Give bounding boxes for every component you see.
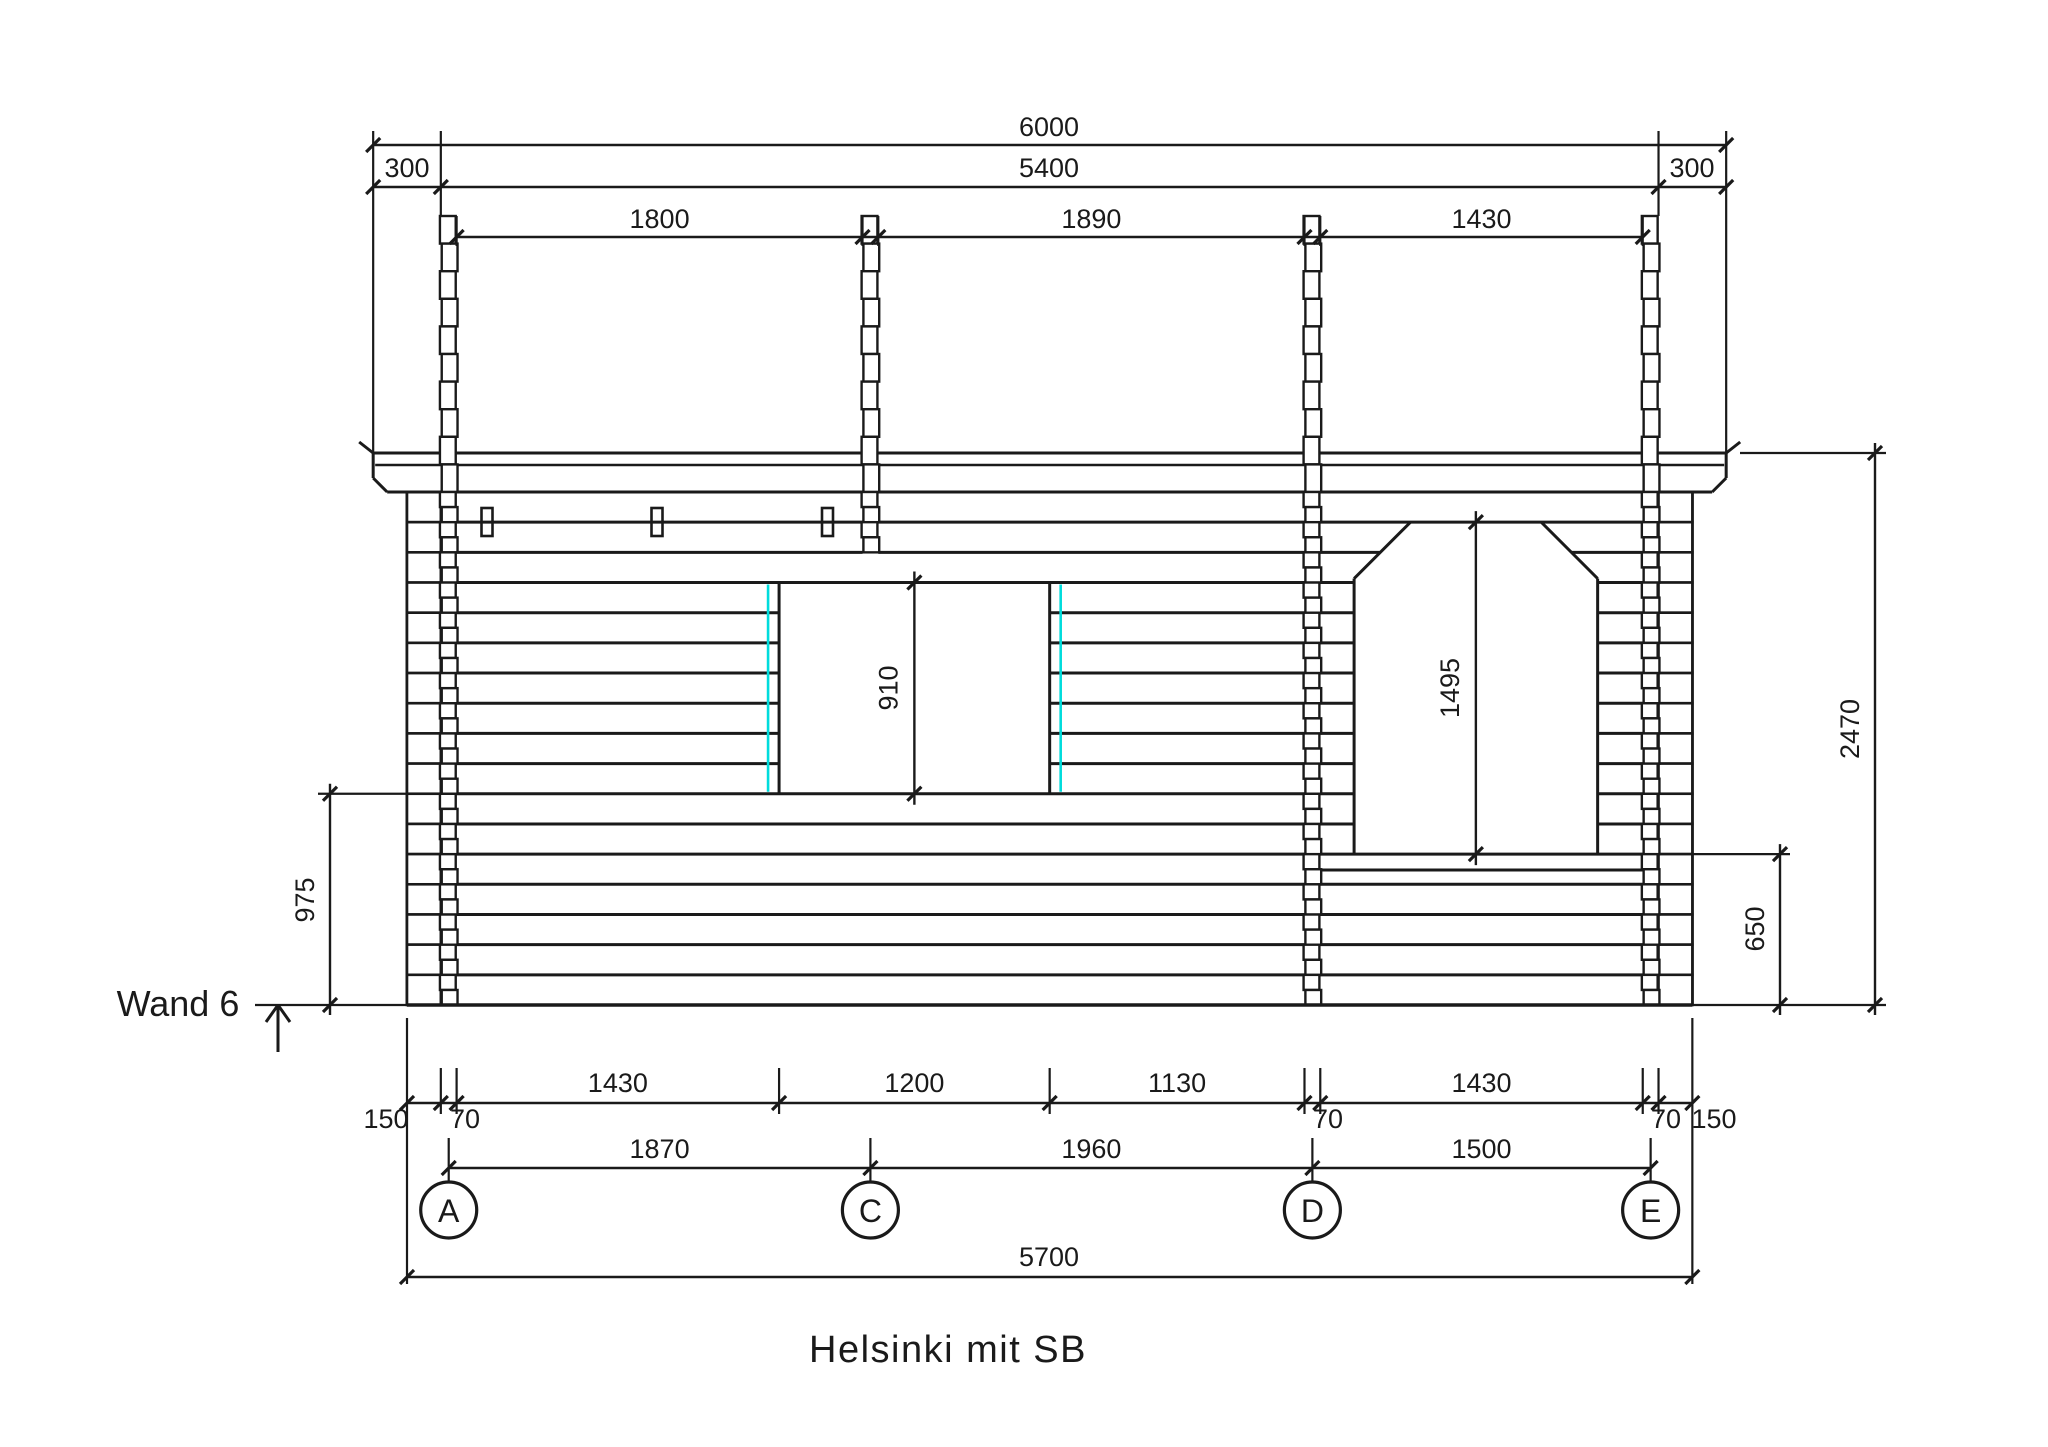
dim-b1-1200: 1200 [884,1068,944,1098]
dim-b1-150l: 150 [363,1104,408,1134]
opening-dimensions: 9101495 [873,511,1482,865]
drawing-sheet: 6000300540030018001890143091014959756502… [0,0,2048,1447]
grid-axis-bubbles: ACDE [421,1182,1679,1238]
dim-wall-height: 2470 [1835,699,1865,759]
axis-label-d: D [1301,1193,1324,1229]
dim-b1-70e: 70 [1651,1104,1681,1134]
wall-label: Wand 6 [117,983,240,1024]
dim-bay-cd: 1890 [1061,204,1121,234]
axis-label-a: A [438,1193,460,1229]
axis-label-e: E [1640,1193,1661,1229]
wall-label-group: Wand 6 [117,983,290,1052]
dim-door-height: 1495 [1435,658,1465,718]
dim-b2-1500: 1500 [1451,1134,1511,1164]
dim-door-sill: 650 [1740,906,1770,951]
title-block: Helsinki mit SB [809,1329,1087,1371]
left-dimension-975: 975 [255,784,407,1015]
post-a [440,216,458,1005]
dim-b2-1870: 1870 [630,1134,690,1164]
dim-b1-1130: 1130 [1148,1068,1206,1098]
dim-b1-70a: 70 [450,1104,480,1134]
door-opening [1320,522,1642,870]
axis-label-c: C [859,1193,882,1229]
dim-window-height: 910 [873,665,903,710]
drawing-title: Helsinki mit SB [809,1329,1087,1371]
dim-b1-1430b: 1430 [1451,1068,1511,1098]
top-dimensions: 60003005400300180018901430 [366,112,1733,453]
post-d [1304,216,1322,1005]
dim-b1-70d: 70 [1313,1104,1343,1134]
roof-fascia [359,442,1740,492]
dim-b2-1960: 1960 [1061,1134,1121,1164]
post-c [862,216,880,552]
dim-left-overhang: 300 [384,153,429,183]
dim-b1-150r: 150 [1691,1104,1736,1134]
dim-b1-1430a: 1430 [588,1068,648,1098]
dim-bottom-total: 5700 [1019,1242,1079,1272]
dim-wall-length: 5400 [1019,153,1079,183]
dim-bay-de: 1430 [1451,204,1511,234]
dim-bay-ac: 1800 [630,204,690,234]
elevation-drawing-wand6: 6000300540030018001890143091014959756502… [0,0,2048,1447]
dim-right-overhang: 300 [1669,153,1714,183]
dim-sill-height: 975 [290,877,320,922]
bottom-dimensions: 1430120011301430150707070150187019601500… [363,1018,1736,1284]
post-e [1642,216,1660,1005]
right-dimensions: 6502470 [1692,443,1886,1015]
dim-top-total: 6000 [1019,112,1079,142]
